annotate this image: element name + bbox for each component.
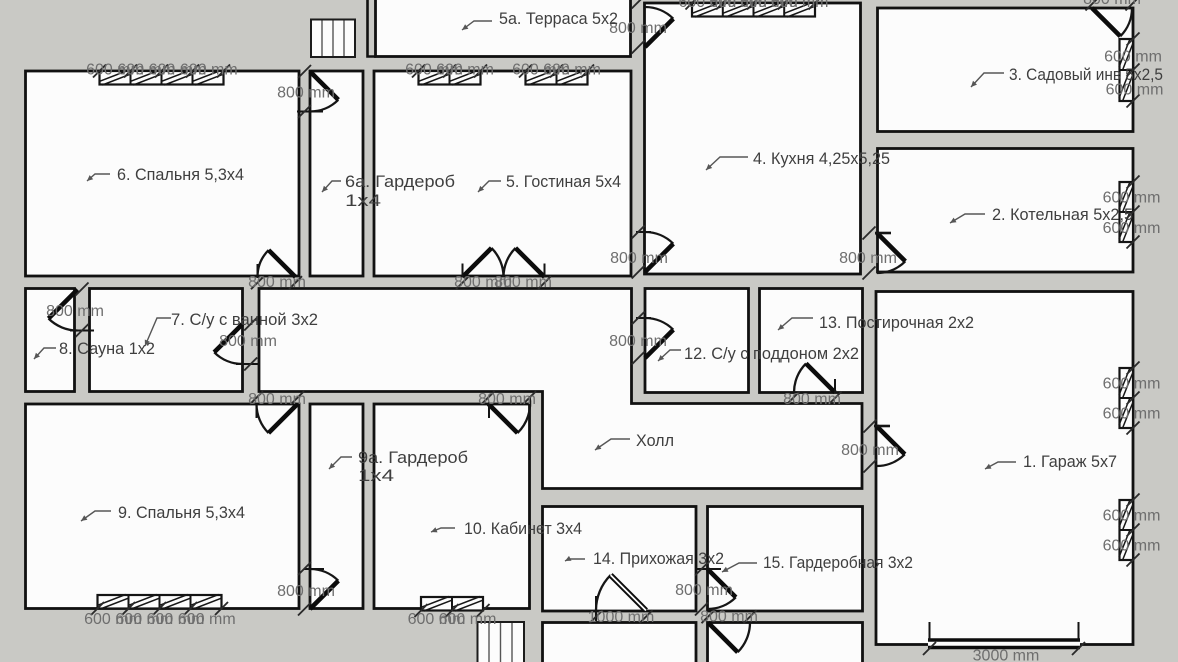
svg-text:800 mm: 800 mm (248, 274, 306, 291)
svg-text:800 mm: 800 mm (675, 582, 733, 599)
svg-text:3. Садовый инв 5x2,5: 3. Садовый инв 5x2,5 (1009, 66, 1163, 84)
svg-text:800 mm: 800 mm (219, 333, 277, 350)
svg-text:800 mm: 800 mm (609, 333, 667, 350)
svg-text:Холл: Холл (636, 432, 674, 450)
svg-text:9а. Гардероб: 9а. Гардероб (358, 449, 468, 467)
svg-text:600 mm: 600 mm (1106, 82, 1164, 99)
svg-text:6. Спальня 5,3x4: 6. Спальня 5,3x4 (117, 166, 244, 184)
svg-text:1х4: 1х4 (345, 192, 381, 210)
svg-text:800 mm: 800 mm (46, 303, 104, 320)
svg-text:800 mm: 800 mm (841, 442, 899, 459)
svg-text:12. С/у с поддоном 2x2: 12. С/у с поддоном 2x2 (684, 345, 859, 363)
svg-text:14. Прихожая 3х2: 14. Прихожая 3х2 (593, 550, 724, 568)
svg-text:800 mm: 800 mm (478, 391, 536, 408)
svg-text:600 mm: 600 mm (1103, 406, 1161, 423)
svg-text:600 mm: 600 mm (771, 0, 829, 11)
svg-text:600 mm: 600 mm (543, 62, 601, 79)
svg-text:800 mm: 800 mm (494, 274, 552, 291)
svg-text:600 mm: 600 mm (1103, 190, 1161, 207)
svg-text:9. Спальня 5,3x4: 9. Спальня 5,3x4 (118, 504, 245, 522)
svg-text:7. С/у с ванной 3x2: 7. С/у с ванной 3x2 (171, 311, 318, 329)
svg-text:2. Котельная 5x2,5: 2. Котельная 5x2,5 (992, 206, 1133, 224)
svg-text:5а. Терраса 5x2: 5а. Терраса 5x2 (499, 10, 618, 28)
svg-text:600 mm: 600 mm (1104, 49, 1162, 66)
svg-text:6а. Гардероб: 6а. Гардероб (345, 173, 455, 191)
svg-text:600 mm: 600 mm (180, 62, 238, 79)
svg-text:3000 mm: 3000 mm (973, 648, 1040, 662)
svg-text:800 mm: 800 mm (610, 250, 668, 267)
svg-text:600 mm: 600 mm (436, 62, 494, 79)
svg-text:15. Гардеробная 3х2: 15. Гардеробная 3х2 (763, 554, 913, 572)
svg-text:1000 mm: 1000 mm (588, 609, 655, 626)
svg-text:600 mm: 600 mm (1103, 508, 1161, 525)
svg-text:800 mm: 800 mm (839, 250, 897, 267)
svg-text:800 mm: 800 mm (277, 583, 335, 600)
svg-text:800 mm: 800 mm (783, 391, 841, 408)
svg-text:4. Кухня 4,25x5,25: 4. Кухня 4,25x5,25 (753, 150, 890, 168)
svg-text:600 mm: 600 mm (1103, 538, 1161, 555)
svg-text:800 mm: 800 mm (248, 391, 306, 408)
svg-text:10. Кабинет 3х4: 10. Кабинет 3х4 (464, 520, 582, 538)
svg-text:600 mm: 600 mm (178, 611, 236, 628)
svg-text:1. Гараж 5x7: 1. Гараж 5x7 (1023, 453, 1117, 471)
svg-text:1х4: 1х4 (358, 467, 394, 485)
svg-text:800 mm: 800 mm (1083, 0, 1141, 8)
svg-text:600 mm: 600 mm (1103, 376, 1161, 393)
svg-text:800 mm: 800 mm (277, 85, 335, 102)
svg-text:5. Гостиная 5x4: 5. Гостиная 5x4 (506, 173, 621, 191)
svg-text:13. Постирочная 2x2: 13. Постирочная 2x2 (819, 314, 974, 332)
svg-text:8. Сауна 1х2: 8. Сауна 1х2 (59, 340, 155, 358)
svg-text:600 mm: 600 mm (439, 611, 497, 628)
svg-text:800 mm: 800 mm (700, 609, 758, 626)
